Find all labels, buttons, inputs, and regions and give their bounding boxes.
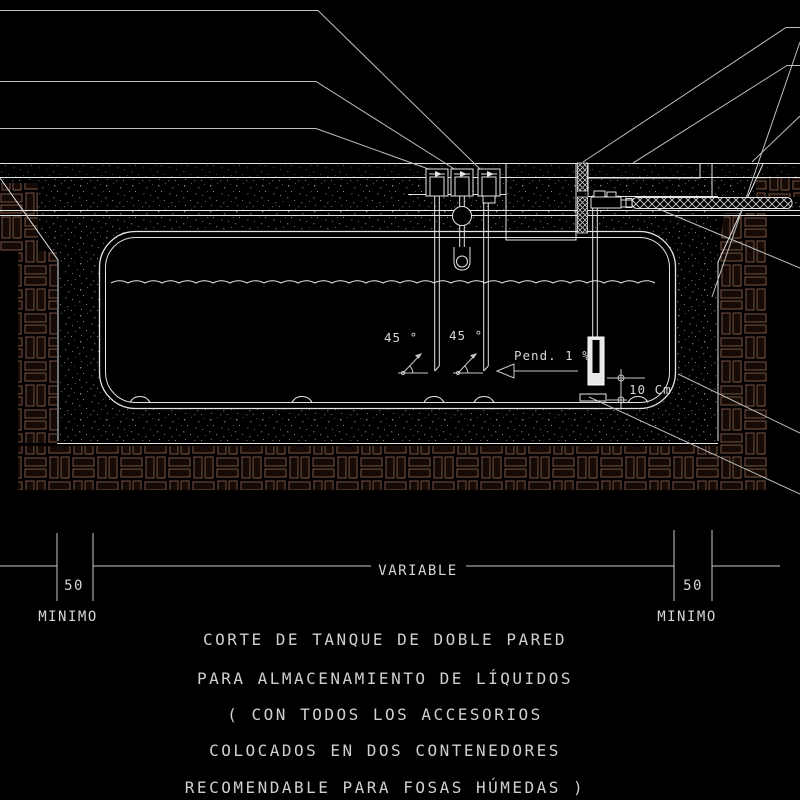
brick-floor	[18, 446, 768, 490]
brick-wall-right	[718, 213, 768, 446]
dim-left-caption: MINIMO	[38, 609, 98, 625]
brick-wall-left	[18, 251, 57, 443]
dim-left-value: 50	[64, 578, 84, 594]
riser-sleeve-lower	[578, 197, 588, 233]
fill-cap-2	[451, 169, 473, 196]
title-line-2: PARA ALMACENAMIENTO DE LÍQUIDOS	[197, 669, 573, 688]
dim-right-value: 50	[683, 578, 703, 594]
braided-hose	[632, 198, 792, 209]
title-line-5: RECOMENDABLE PARA FOSAS HÚMEDAS )	[185, 778, 585, 797]
riser-sleeve-upper	[578, 163, 588, 191]
angle-label-left: 45 °	[384, 330, 418, 345]
dim-center-caption: VARIABLE	[378, 563, 457, 579]
cad-drawing-page: 45 ° 45 ° Pend. 1 % 10 Cm 50 MINIMO VARI…	[0, 0, 800, 800]
brick-surface-right	[756, 178, 800, 197]
foot-valve-slot	[593, 340, 600, 373]
title-line-3: ( CON TODOS LOS ACCESORIOS	[227, 705, 542, 724]
title-line-1: CORTE DE TANQUE DE DOBLE PARED	[203, 630, 567, 649]
dim-right-caption: MINIMO	[657, 609, 717, 625]
tank-section-drawing: 45 ° 45 ° Pend. 1 % 10 Cm 50 MINIMO VARI…	[0, 0, 800, 800]
title-line-4: COLOCADOS EN DOS CONTENEDORES	[209, 741, 561, 760]
fill-cap-1	[426, 169, 448, 196]
clearance-label: 10 Cm	[629, 382, 672, 397]
angle-label-right: 45 °	[449, 328, 483, 343]
slope-label: Pend. 1 %	[514, 348, 591, 363]
brick-surface-left	[0, 183, 38, 251]
